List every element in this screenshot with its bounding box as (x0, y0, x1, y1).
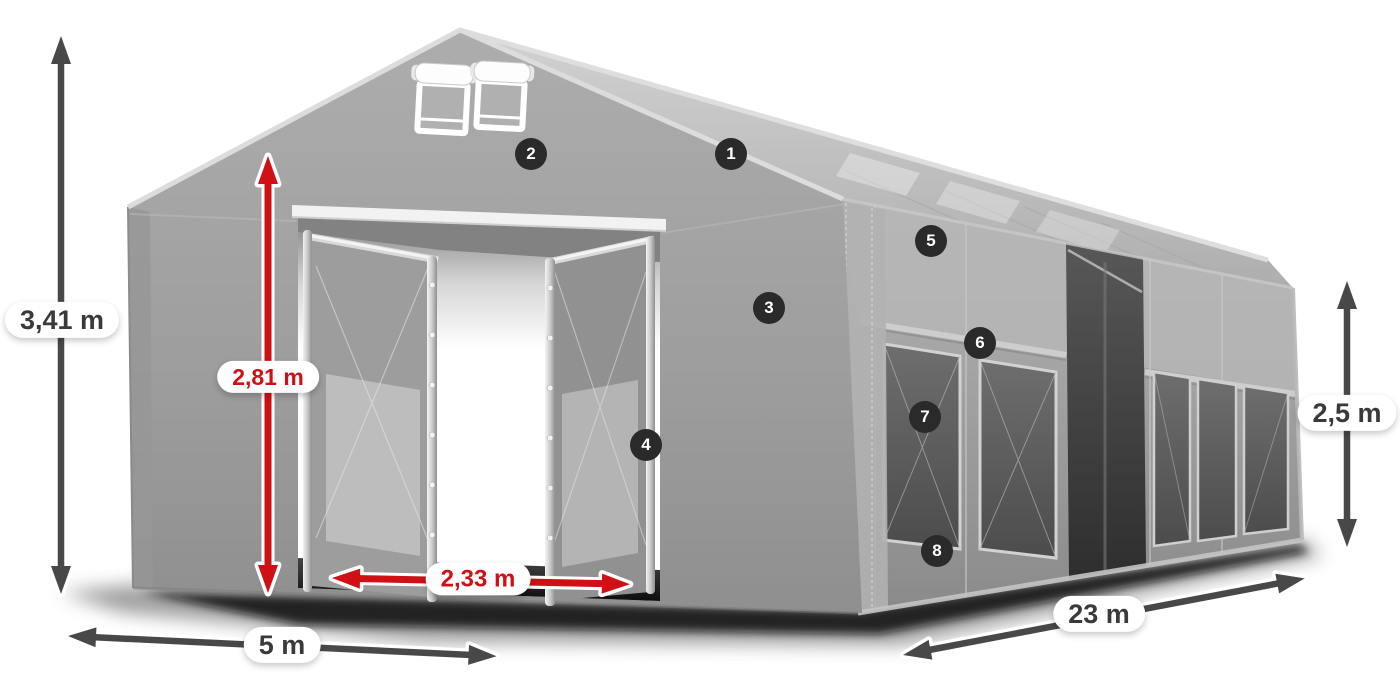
tent-illustration (0, 0, 1400, 700)
side-window-2 (980, 360, 1056, 558)
dimension-label-width: 5 m (244, 627, 321, 663)
callout-7-side-window: 7 (909, 401, 941, 433)
callout-2-gable: 2 (515, 138, 547, 170)
side-window-4 (1198, 379, 1236, 541)
callout-8-base: 8 (921, 535, 953, 567)
side-window-5 (1244, 386, 1288, 534)
side-window-3 (1154, 372, 1190, 546)
tent-diagram-stage: 3,41 m 2,81 m 2,33 m 5 m 23 m 2,5 m 1 2 … (0, 0, 1400, 700)
door-panel-left (303, 230, 438, 602)
door-panel-right (545, 236, 655, 606)
callout-3-front-wall: 3 (753, 292, 785, 324)
callout-6-side-rail: 6 (964, 327, 996, 359)
side-window-1 (884, 344, 960, 549)
side-door-opening (1066, 242, 1146, 579)
roof-vent-left (408, 62, 477, 133)
callout-5-upper-panel: 5 (915, 225, 947, 257)
dimension-label-entrance-width: 2,33 m (426, 562, 531, 595)
callout-1-roof: 1 (715, 138, 747, 170)
roof-vent-right (467, 60, 534, 129)
dimension-label-side-height: 2,5 m (1297, 395, 1396, 431)
dimension-label-total-height: 3,41 m (5, 302, 119, 338)
dimension-label-entrance-height: 2,81 m (217, 361, 319, 393)
dimension-label-length: 23 m (1053, 596, 1145, 632)
callout-4-entrance-door: 4 (630, 429, 662, 461)
front-entrance (292, 205, 666, 606)
